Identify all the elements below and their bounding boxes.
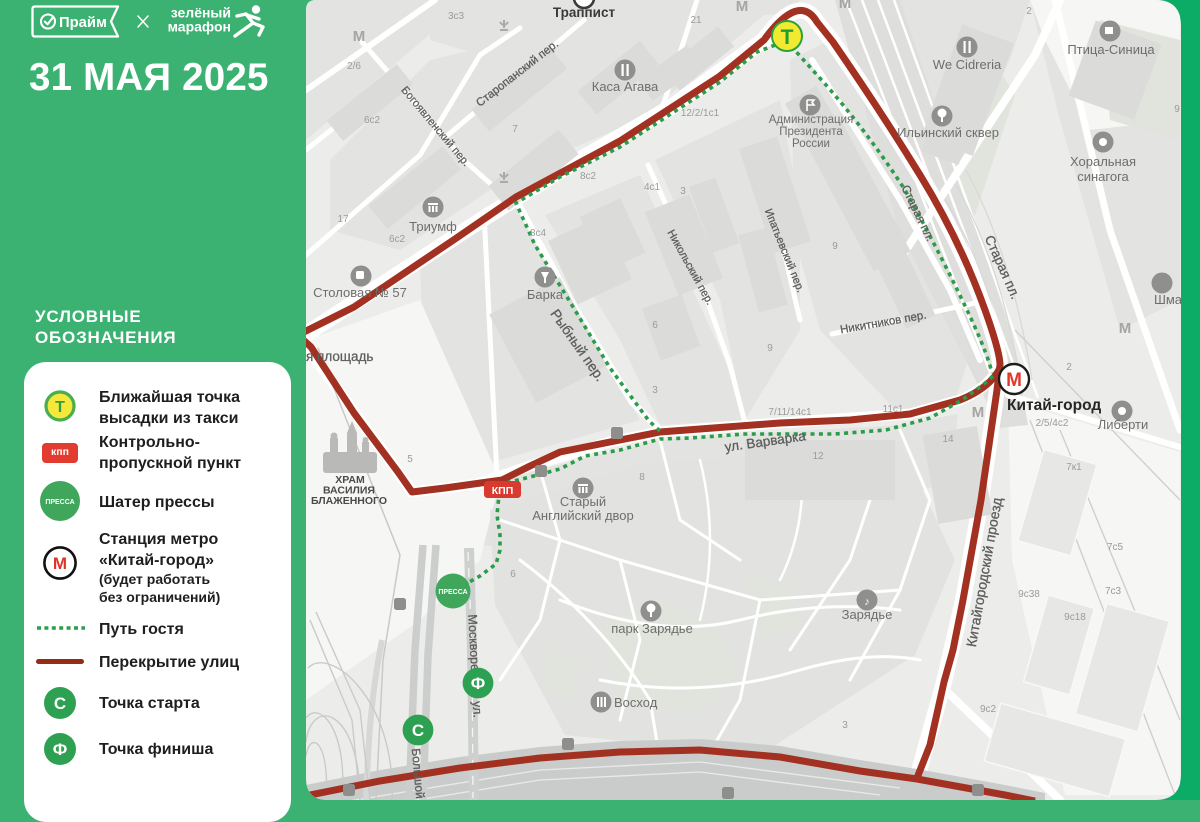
- svg-text:9: 9: [767, 343, 773, 354]
- svg-text:Китай-город: Китай-город: [1007, 397, 1101, 414]
- svg-text:8с2: 8с2: [580, 171, 597, 182]
- svg-text:2: 2: [1026, 6, 1032, 17]
- svg-text:М: М: [839, 0, 852, 12]
- svg-text:2/6: 2/6: [347, 61, 361, 72]
- svg-text:я площадь: я площадь: [306, 349, 373, 364]
- svg-text:8с4: 8с4: [530, 228, 547, 239]
- svg-text:7к1: 7к1: [1066, 462, 1082, 473]
- svg-text:2: 2: [1066, 362, 1072, 373]
- svg-text:Птица-Синица: Птица-Синица: [1067, 42, 1155, 57]
- svg-text:12: 12: [812, 451, 824, 462]
- svg-text:России: России: [792, 138, 830, 150]
- svg-text:марафон: марафон: [168, 19, 231, 35]
- svg-text:Барка: Барка: [527, 287, 564, 302]
- svg-text:9с38: 9с38: [1018, 589, 1040, 600]
- svg-text:7с3: 7с3: [1105, 586, 1122, 597]
- svg-text:3: 3: [652, 385, 658, 396]
- svg-text:Ф: Ф: [471, 674, 486, 693]
- svg-text:9: 9: [1174, 104, 1180, 115]
- svg-text:Зарядье: Зарядье: [842, 607, 893, 622]
- svg-text:12/2/1с1: 12/2/1с1: [681, 108, 720, 119]
- svg-text:6: 6: [510, 569, 516, 580]
- svg-text:Либерти: Либерти: [1098, 417, 1148, 432]
- svg-text:9: 9: [832, 241, 838, 252]
- svg-text:3: 3: [680, 186, 686, 197]
- svg-text:Прайм: Прайм: [59, 15, 107, 31]
- svg-text:Траппист: Траппист: [553, 5, 616, 20]
- svg-text:3: 3: [842, 720, 848, 731]
- svg-text:С: С: [54, 694, 66, 713]
- svg-text:С: С: [412, 721, 424, 740]
- svg-text:6с2: 6с2: [364, 115, 381, 126]
- svg-text:5: 5: [407, 454, 413, 465]
- svg-text:Т: Т: [55, 399, 65, 416]
- svg-text:Английский двор: Английский двор: [532, 508, 634, 523]
- svg-text:парк Зарядье: парк Зарядье: [611, 621, 693, 636]
- svg-text:ПРЕССА: ПРЕССА: [438, 589, 467, 596]
- svg-text:11с1: 11с1: [883, 404, 904, 415]
- svg-text:Восход: Восход: [614, 695, 658, 710]
- svg-text:Президента: Президента: [779, 126, 843, 138]
- svg-text:6с2: 6с2: [389, 234, 406, 245]
- svg-text:Столовая № 57: Столовая № 57: [313, 285, 407, 300]
- svg-text:М: М: [1119, 320, 1132, 337]
- svg-text:We Cidreria: We Cidreria: [933, 57, 1002, 72]
- svg-text:2/5/4с2: 2/5/4с2: [1036, 418, 1069, 429]
- svg-text:ПРЕССА: ПРЕССА: [45, 499, 74, 506]
- svg-text:Ф: Ф: [53, 740, 68, 759]
- svg-text:7с5: 7с5: [1107, 542, 1124, 553]
- svg-text:4с1: 4с1: [644, 182, 661, 193]
- svg-text:6: 6: [652, 320, 658, 331]
- svg-text:Администрация: Администрация: [769, 114, 854, 126]
- svg-text:21: 21: [690, 15, 702, 26]
- svg-text:М: М: [736, 0, 749, 15]
- svg-text:КПП: КПП: [492, 485, 514, 497]
- svg-text:3с3: 3с3: [448, 11, 465, 22]
- svg-text:9с2: 9с2: [980, 704, 997, 715]
- svg-text:14: 14: [942, 434, 954, 445]
- svg-text:Триумф: Триумф: [409, 219, 457, 234]
- svg-text:7/11/14с1: 7/11/14с1: [768, 407, 812, 418]
- svg-text:8: 8: [639, 472, 645, 483]
- svg-text:БЛАЖЕННОГО: БЛАЖЕННОГО: [311, 495, 387, 507]
- svg-text:М: М: [1006, 370, 1022, 391]
- svg-text:Хоральная: Хоральная: [1070, 154, 1136, 169]
- svg-text:М: М: [353, 28, 366, 45]
- svg-text:17: 17: [337, 214, 349, 225]
- svg-text:Старый: Старый: [560, 494, 606, 509]
- svg-text:Ильинский сквер: Ильинский сквер: [897, 125, 999, 140]
- svg-text:М: М: [972, 404, 985, 421]
- svg-text:7: 7: [512, 124, 518, 135]
- svg-text:Т: Т: [781, 26, 794, 49]
- svg-text:синагога: синагога: [1077, 169, 1129, 184]
- svg-text:М: М: [53, 554, 67, 573]
- svg-text:9с18: 9с18: [1064, 612, 1086, 623]
- svg-text:Шма: Шма: [1154, 292, 1181, 307]
- svg-text:Каса Агава: Каса Агава: [592, 79, 659, 94]
